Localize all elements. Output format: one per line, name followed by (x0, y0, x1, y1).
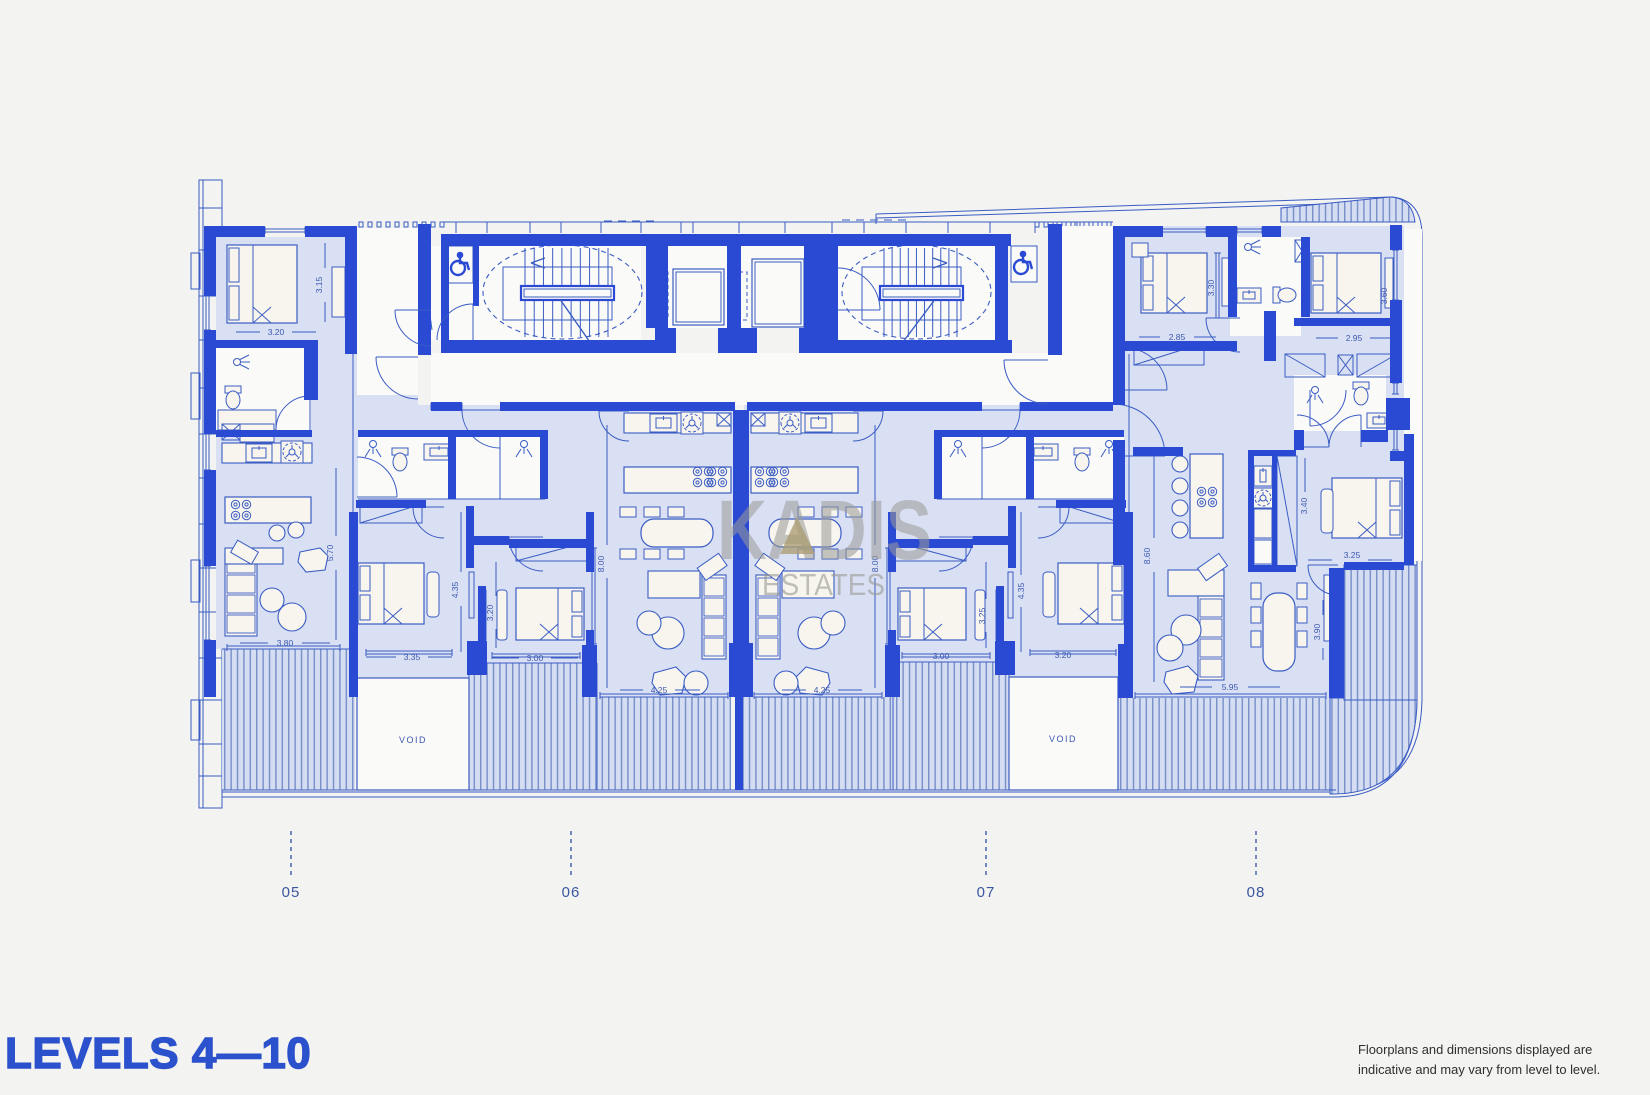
svg-text:4.25: 4.25 (651, 685, 668, 695)
svg-text:3.20: 3.20 (1055, 650, 1072, 660)
svg-text:3.90: 3.90 (1312, 623, 1322, 640)
svg-text:3.15: 3.15 (314, 276, 324, 293)
svg-text:3.00: 3.00 (933, 651, 950, 661)
svg-text:3.30: 3.30 (1206, 279, 1216, 296)
svg-text:4.35: 4.35 (1016, 582, 1026, 599)
svg-text:8.60: 8.60 (1142, 547, 1152, 564)
svg-text:05: 05 (282, 884, 301, 901)
svg-text:08: 08 (1247, 884, 1266, 901)
svg-text:3.00: 3.00 (527, 653, 544, 663)
svg-text:06: 06 (562, 884, 581, 901)
svg-text:3.80: 3.80 (277, 638, 294, 648)
svg-text:3.25: 3.25 (1344, 550, 1361, 560)
svg-text:KADIS: KADIS (717, 483, 932, 577)
svg-text:2.85: 2.85 (1169, 332, 1186, 342)
svg-text:8.00: 8.00 (596, 555, 606, 572)
svg-text:3.20: 3.20 (485, 604, 495, 621)
svg-text:2.95: 2.95 (1346, 333, 1363, 343)
svg-text:VOID: VOID (1049, 734, 1077, 744)
svg-text:3.25: 3.25 (977, 607, 987, 624)
svg-text:4.25: 4.25 (814, 685, 831, 695)
svg-text:3.35: 3.35 (404, 652, 421, 662)
svg-text:4.35: 4.35 (450, 581, 460, 598)
svg-text:3.60: 3.60 (1379, 287, 1389, 304)
svg-text:3.40: 3.40 (1299, 497, 1309, 514)
svg-text:5.70: 5.70 (325, 544, 335, 561)
svg-text:ESTATES: ESTATES (762, 567, 885, 602)
svg-text:3.20: 3.20 (268, 327, 285, 337)
svg-text:VOID: VOID (399, 735, 427, 745)
svg-text:5.95: 5.95 (1222, 682, 1239, 692)
svg-text:07: 07 (977, 884, 996, 901)
